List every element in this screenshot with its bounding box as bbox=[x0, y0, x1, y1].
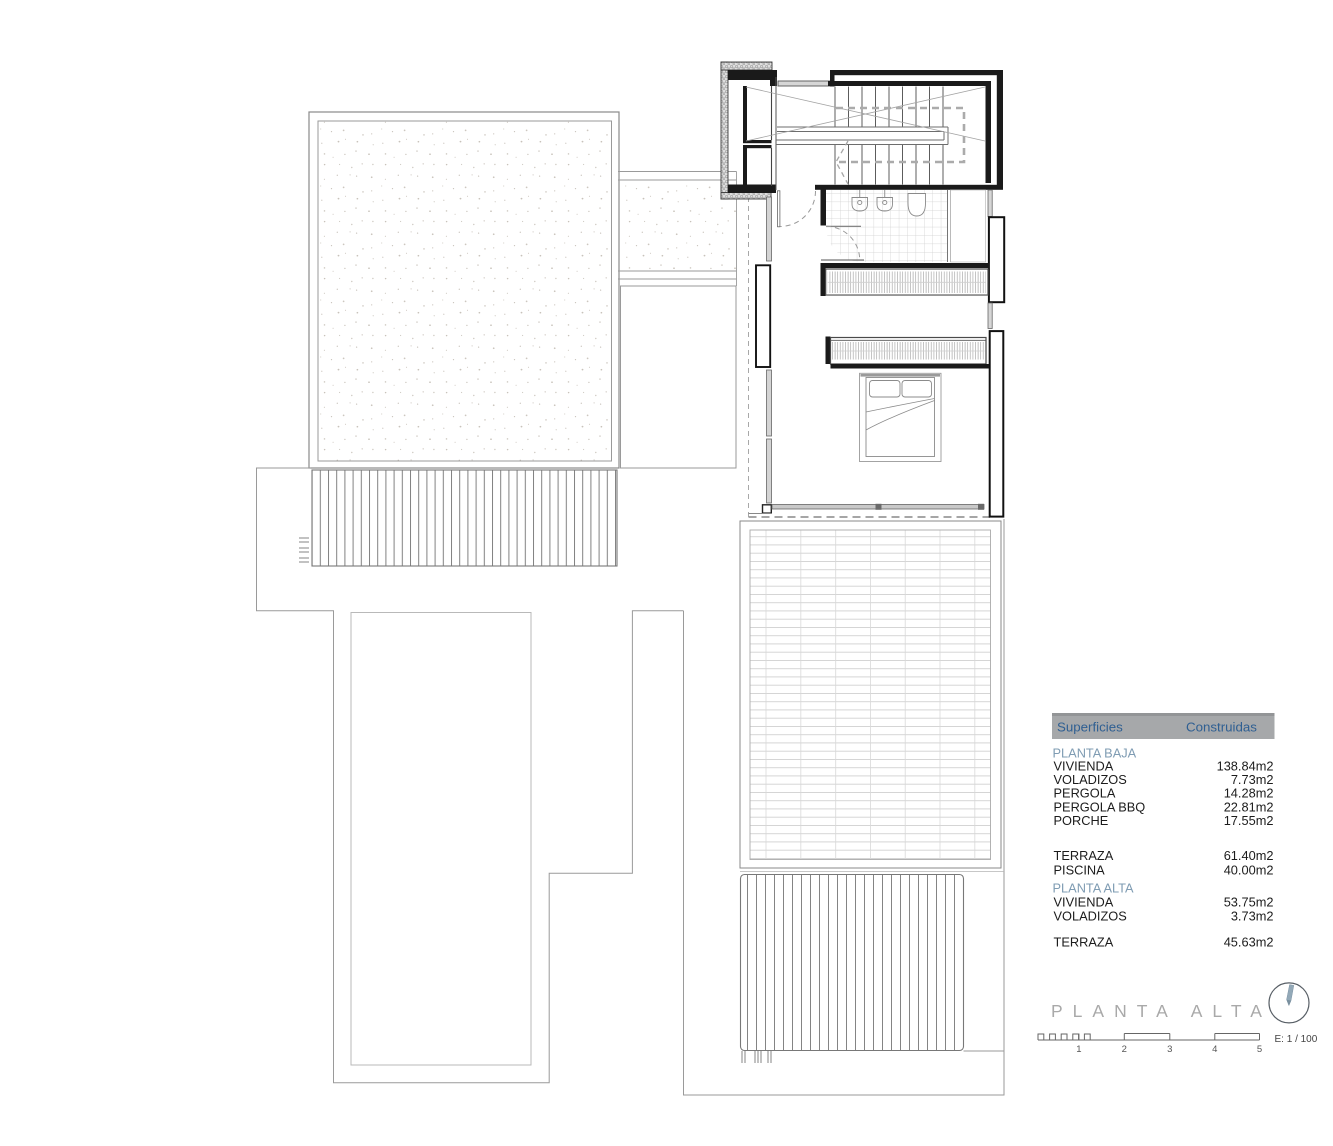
svg-text:53.75m2: 53.75m2 bbox=[1224, 894, 1274, 909]
svg-text:Superficies: Superficies bbox=[1057, 720, 1123, 735]
svg-text:PLANTA ALTA: PLANTA ALTA bbox=[1053, 881, 1135, 896]
svg-text:PLANTA ALTA: PLANTA ALTA bbox=[1051, 1001, 1272, 1021]
svg-text:Construidas: Construidas bbox=[1186, 720, 1257, 735]
svg-text:1: 1 bbox=[1076, 1044, 1081, 1055]
svg-text:E: 1 / 100: E: 1 / 100 bbox=[1275, 1034, 1318, 1045]
svg-text:PISCINA: PISCINA bbox=[1054, 863, 1106, 878]
svg-text:45.63m2: 45.63m2 bbox=[1224, 934, 1274, 949]
svg-text:PORCHE: PORCHE bbox=[1054, 813, 1109, 828]
svg-text:TERRAZA: TERRAZA bbox=[1054, 934, 1114, 949]
svg-text:17.55m2: 17.55m2 bbox=[1224, 813, 1274, 828]
svg-text:5: 5 bbox=[1257, 1044, 1262, 1055]
svg-text:3.73m2: 3.73m2 bbox=[1231, 908, 1274, 923]
svg-text:VOLADIZOS: VOLADIZOS bbox=[1054, 908, 1127, 923]
svg-text:VIVIENDA: VIVIENDA bbox=[1054, 894, 1114, 909]
svg-text:TERRAZA: TERRAZA bbox=[1054, 848, 1114, 863]
svg-text:2: 2 bbox=[1122, 1044, 1127, 1055]
svg-text:40.00m2: 40.00m2 bbox=[1224, 863, 1274, 878]
svg-text:61.40m2: 61.40m2 bbox=[1224, 848, 1274, 863]
svg-text:4: 4 bbox=[1212, 1044, 1217, 1055]
svg-text:3: 3 bbox=[1167, 1044, 1172, 1055]
